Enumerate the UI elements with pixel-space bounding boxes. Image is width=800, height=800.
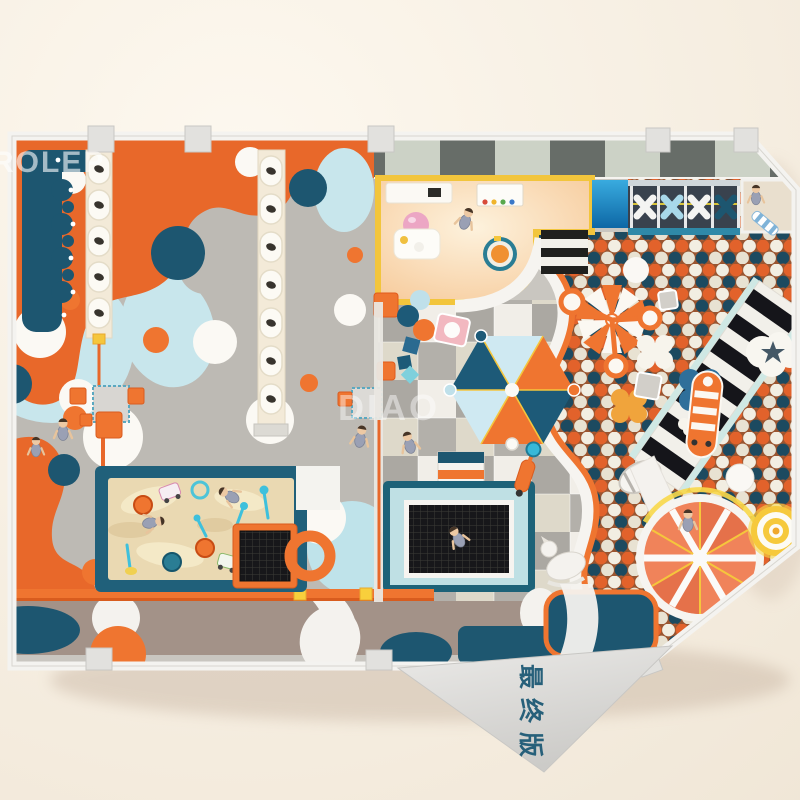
floorplan-render: 最终版 ROLEP DIAO: [0, 0, 800, 800]
bucket: [196, 539, 214, 557]
counter: [386, 183, 452, 203]
roller-climb-wall-mid: [254, 150, 288, 436]
foam-cube: [658, 290, 678, 310]
brand-watermark: ROLEP: [0, 146, 105, 179]
version-watermark: 最终版: [516, 664, 545, 766]
foam-ball: [623, 257, 649, 283]
bucket: [163, 553, 181, 571]
x-crossing-frame: [628, 180, 740, 235]
center-watermark: DIAO: [338, 387, 440, 428]
playground-floorplan: 最终版 ROLEP DIAO: [0, 0, 800, 800]
foam-ball: [726, 464, 754, 492]
sand-step: [296, 466, 340, 510]
bucket: [134, 496, 152, 514]
foam-cube: [634, 372, 662, 400]
blue-panel: [592, 180, 628, 228]
stairs: [541, 230, 588, 274]
sand-pit: [95, 466, 340, 592]
corner-room: [742, 180, 796, 237]
